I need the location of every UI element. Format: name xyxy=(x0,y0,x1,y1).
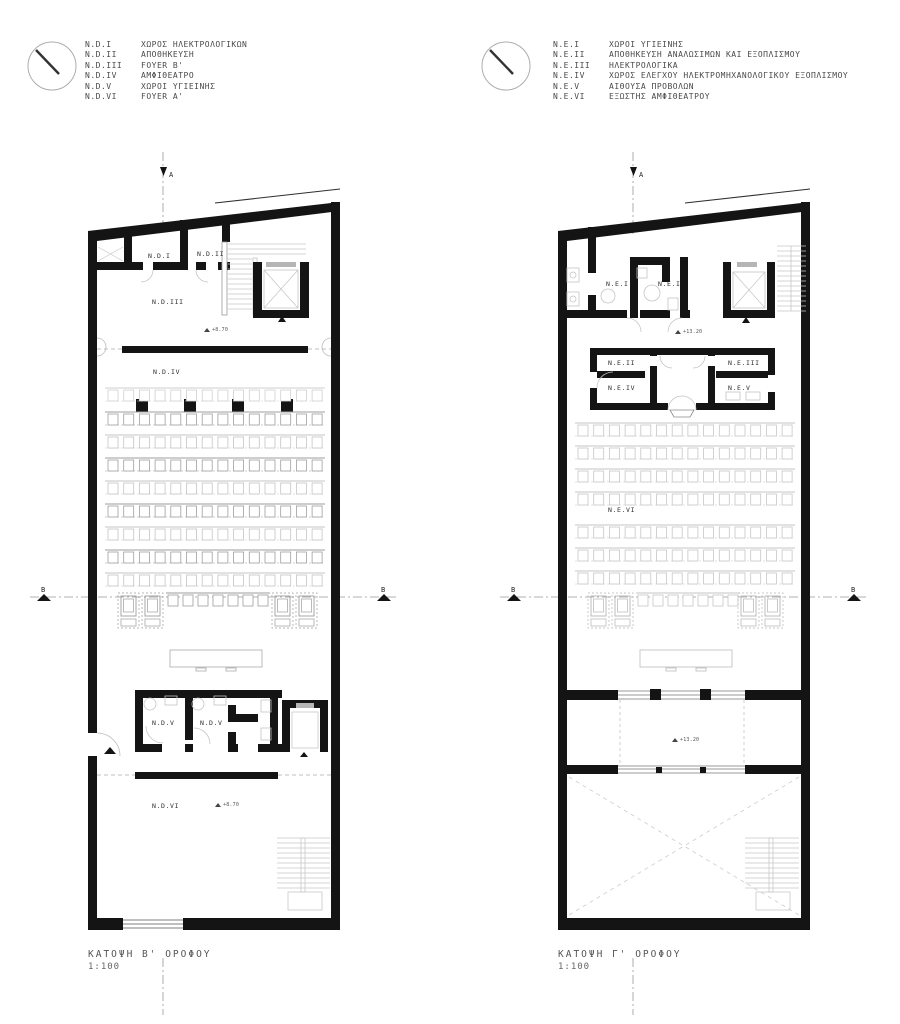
svg-text:+13.20: +13.20 xyxy=(683,329,702,335)
room-label: N.D.I xyxy=(148,252,171,260)
seat-rows xyxy=(105,388,325,606)
plan-title: ΚΑΤΟΨΗ Β' ΟΡΟΦΟΥ xyxy=(88,948,212,961)
room-label: N.D.VI xyxy=(152,802,179,810)
terrace xyxy=(620,700,744,764)
plan-scale: 1:100 xyxy=(558,961,682,974)
staircase xyxy=(277,838,330,910)
staircase xyxy=(745,838,799,910)
plan-title: ΚΑΤΟΨΗ Γ' ΟΡΟΦΟΥ xyxy=(558,948,682,961)
glazing-wall xyxy=(567,689,801,700)
svg-text:A: A xyxy=(169,171,174,179)
podium-table xyxy=(170,650,262,671)
podium-table xyxy=(640,650,732,671)
room-label: N.E.I xyxy=(658,280,681,288)
level-marker: +13.20 xyxy=(672,737,699,743)
stage-wall xyxy=(122,346,308,353)
room-label: N.E.IV xyxy=(608,384,635,392)
plan-caption: ΚΑΤΟΨΗ Γ' ΟΡΟΦΟΥ 1:100 xyxy=(558,948,682,974)
floor-plan-b: A B B xyxy=(30,152,398,1015)
seat-rows xyxy=(575,423,795,606)
room-label: N.E.III xyxy=(728,359,760,367)
room-label: N.D.III xyxy=(152,298,184,306)
room-label: N.E.V xyxy=(728,384,751,392)
floor-plan-c: A B B xyxy=(500,152,868,1015)
level-marker: +13.20 xyxy=(675,329,702,335)
svg-text:A: A xyxy=(639,171,644,179)
room-label: N.E.VI xyxy=(608,506,635,514)
void-area xyxy=(569,777,799,915)
svg-text:+8.70: +8.70 xyxy=(212,327,228,333)
room-label: N.D.IV xyxy=(153,368,180,376)
svg-text:B: B xyxy=(851,586,855,594)
drawing-sheet: { "style": {"ink": "#141414", "light_lin… xyxy=(0,0,900,1024)
plans-svg: A B B xyxy=(0,0,900,1024)
elevator xyxy=(723,262,775,323)
entry-door xyxy=(88,733,120,756)
room-label: N.D.V xyxy=(152,719,175,727)
window xyxy=(123,920,183,928)
svg-text:+13.20: +13.20 xyxy=(680,737,699,743)
room-label: N.D.V xyxy=(200,719,223,727)
closet-x xyxy=(98,247,123,261)
room-label: N.D.II xyxy=(197,250,224,258)
svg-text:+8.70: +8.70 xyxy=(223,802,239,808)
foyer-wall xyxy=(135,772,278,779)
svg-text:B: B xyxy=(381,586,385,594)
svg-text:B: B xyxy=(41,586,45,594)
level-marker: +8.70 xyxy=(215,802,239,808)
glazing-wall xyxy=(567,765,801,774)
elevator xyxy=(282,700,328,757)
level-marker: +8.70 xyxy=(204,327,228,333)
room-label: N.E.II xyxy=(608,359,635,367)
plan-caption: ΚΑΤΟΨΗ Β' ΟΡΟΦΟΥ 1:100 xyxy=(88,948,212,974)
svg-text:B: B xyxy=(511,586,515,594)
room-label: N.E.I xyxy=(606,280,629,288)
elevator xyxy=(253,262,309,322)
plan-scale: 1:100 xyxy=(88,961,212,974)
